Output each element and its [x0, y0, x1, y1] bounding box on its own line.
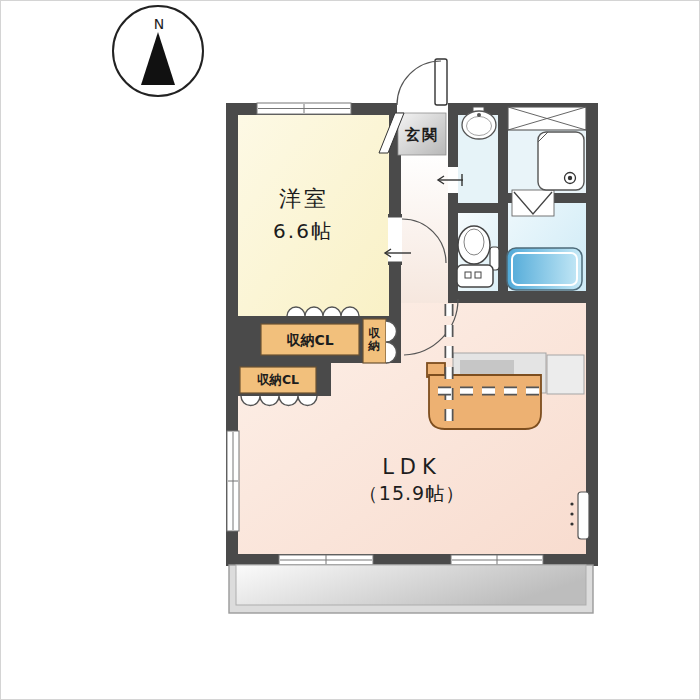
- ldk-label: LDK: [382, 455, 442, 479]
- entrance-label: 玄関: [404, 126, 439, 144]
- compass-n-label: N: [154, 16, 164, 32]
- ldk-size: （15.9帖）: [359, 482, 465, 504]
- room-western-floor: [238, 115, 389, 318]
- doorway-gap: [388, 214, 402, 265]
- floor-plan-canvas: 洋室 6.6帖 玄関 LDK （15.9帖） 収納CL 収納CL 収 納 N: [1, 1, 700, 700]
- vent-dot: [570, 502, 573, 505]
- closet-side-label-1: 収: [368, 326, 380, 340]
- floor-plan-page: 洋室 6.6帖 玄関 LDK （15.9帖） 収納CL 収納CL 収 納 N: [0, 0, 700, 700]
- vent-dot: [570, 522, 573, 525]
- slit-window: [578, 492, 589, 539]
- toilet-icon: [458, 226, 490, 264]
- bathtub-icon: [507, 248, 582, 290]
- western-room-size: 6.6帖: [273, 219, 333, 243]
- western-room-label: 洋室: [279, 186, 329, 211]
- wall-segment: [448, 103, 458, 167]
- door-frame-tick: [388, 214, 402, 218]
- washbasin-drain: [477, 113, 481, 117]
- balcony-deck: [236, 565, 586, 605]
- closet-upper-label: 収納CL: [286, 332, 333, 348]
- closet-lower-label: 収納CL: [257, 372, 299, 387]
- washing-machine-pan: [538, 132, 584, 190]
- drain-icon-dot: [568, 176, 572, 180]
- closet-side-label-2: 納: [367, 339, 380, 353]
- refrigerator-space: [547, 355, 584, 394]
- wall-segment: [448, 291, 598, 303]
- folding-bath-door: [512, 190, 554, 216]
- hallway-floor: [401, 151, 448, 303]
- compass: N: [113, 6, 203, 96]
- entrance-door-leaf: [435, 59, 447, 105]
- door-frame-tick: [388, 262, 402, 266]
- wall-segment: [448, 203, 508, 213]
- vent-dot: [570, 512, 573, 515]
- balcony: [229, 565, 593, 613]
